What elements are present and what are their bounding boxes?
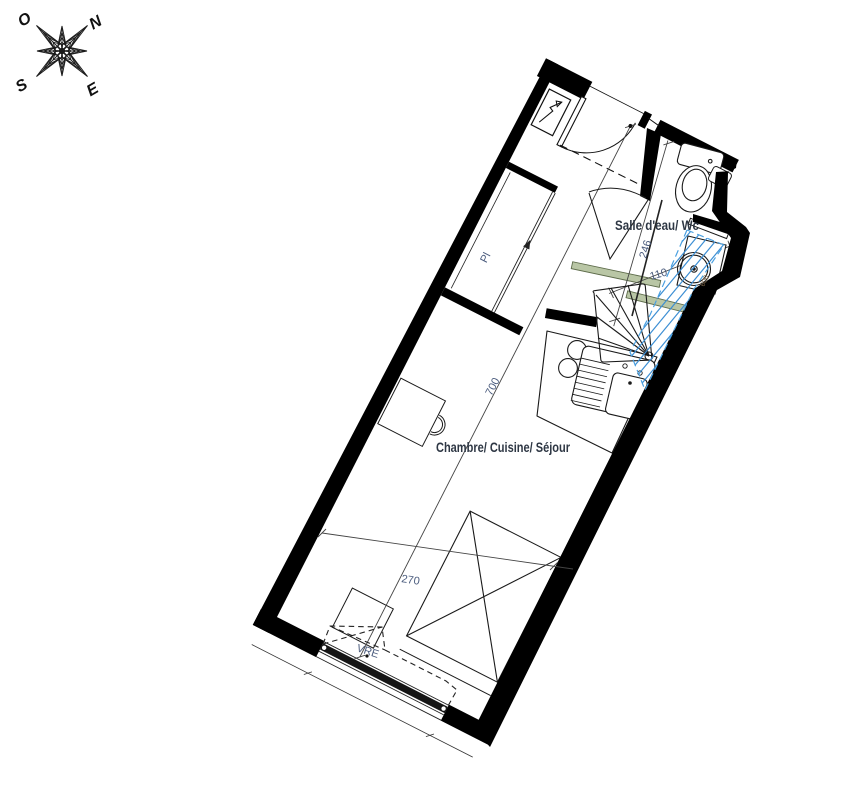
svg-text:Chambre/ Cuisine/ Séjour: Chambre/ Cuisine/ Séjour: [436, 439, 570, 455]
svg-text:Salle d'eau/ Wc: Salle d'eau/ Wc: [615, 217, 699, 233]
